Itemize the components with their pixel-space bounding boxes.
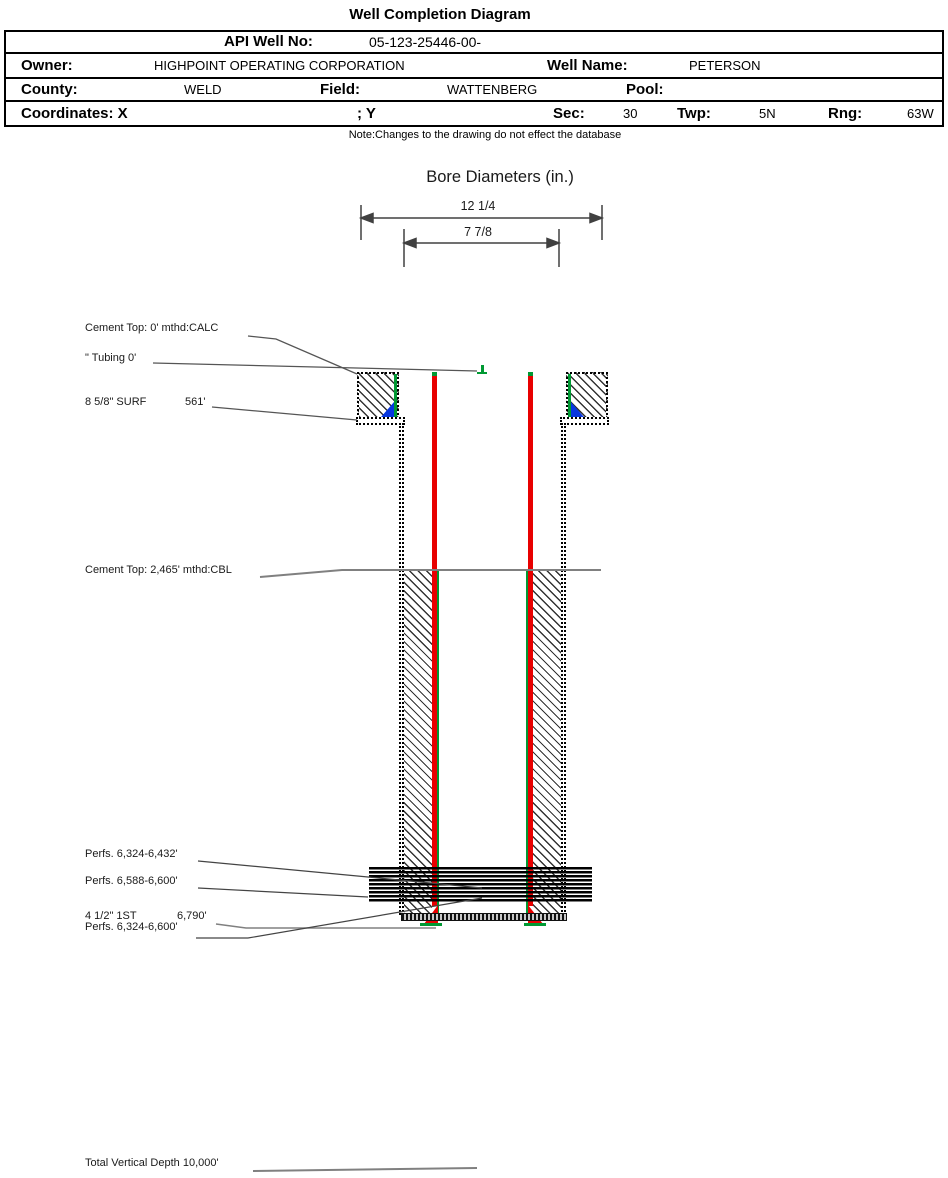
label-surface-casing: 8 5/8" SURF 561'	[85, 396, 146, 408]
sec-label: Sec:	[553, 102, 585, 125]
tubing-tick-base	[477, 372, 487, 374]
label-cement-top-surface: Cement Top: 0' mthd:CALC	[85, 322, 218, 334]
surface-casing-line-right	[568, 374, 571, 417]
label-cement-top-production: Cement Top: 2,465' mthd:CBL	[85, 564, 232, 576]
bore-diameters-title: Bore Diameters (in.)	[0, 168, 948, 187]
casing-inner-green-right	[526, 570, 528, 914]
outer-bore-dimension-label: 12 1/4	[428, 199, 528, 213]
label-tubing: " Tubing 0'	[85, 352, 136, 364]
inner-bore-dimension-label: 7 7/8	[428, 225, 528, 239]
surface-shoe-bar-right	[560, 417, 609, 425]
coordinates-y-label: ; Y	[357, 102, 376, 125]
label-surface-casing-depth: 561'	[185, 396, 205, 408]
twp-label: Twp:	[677, 102, 711, 125]
label-perfs-overall: Perfs. 6,324-6,600'	[85, 921, 178, 933]
well-info-table: API Well No: 05-123-25446-00- Owner: HIG…	[4, 30, 944, 127]
leader-perfs-middle	[198, 888, 368, 897]
pool-label: Pool:	[626, 79, 664, 100]
well-name-label: Well Name:	[547, 54, 628, 77]
production-cement-left	[404, 570, 432, 914]
rng-label: Rng:	[828, 102, 862, 125]
casing-top-cap-right	[528, 372, 533, 376]
surface-shoe-bar-left	[356, 417, 405, 425]
sec-value: 30	[623, 102, 637, 125]
casing-top-cap-left	[432, 372, 437, 376]
leader-surface-casing	[212, 407, 357, 420]
production-casing-right	[528, 372, 533, 906]
owner-value: HIGHPOINT OPERATING CORPORATION	[154, 54, 405, 77]
label-perfs-middle: Perfs. 6,588-6,600'	[85, 875, 178, 887]
table-row-api: API Well No: 05-123-25446-00-	[6, 32, 942, 52]
county-label: County:	[21, 79, 78, 100]
shoe-base-left	[420, 923, 442, 926]
table-row-owner: Owner: HIGHPOINT OPERATING CORPORATION W…	[6, 52, 942, 77]
well-name-value: PETERSON	[689, 54, 761, 77]
borehole-wall-right	[561, 423, 566, 915]
page-title: Well Completion Diagram	[0, 6, 880, 23]
label-total-vertical-depth: Total Vertical Depth 10,000'	[85, 1157, 219, 1169]
county-value: WELD	[184, 79, 222, 100]
twp-value: 5N	[759, 102, 776, 125]
casing-inner-green-left	[437, 570, 439, 914]
label-production-casing-depth: 6,790'	[177, 910, 207, 922]
coordinates-label: Coordinates: X	[21, 102, 128, 125]
well-completion-diagram-page: Well Completion Diagram API Well No: 05-…	[0, 0, 948, 1178]
field-label: Field:	[320, 79, 360, 100]
api-label: API Well No:	[224, 32, 313, 52]
owner-label: Owner:	[21, 54, 73, 77]
shoe-base-right	[524, 923, 546, 926]
leader-production-casing	[216, 924, 436, 928]
database-note: Note:Changes to the drawing do not effec…	[0, 129, 948, 141]
leader-cement-top-surface	[248, 336, 357, 374]
well-bottom-bar	[401, 913, 567, 921]
table-row-coordinates: Coordinates: X ; Y Sec: 30 Twp: 5N Rng: …	[6, 100, 942, 125]
table-row-county: County: WELD Field: WATTENBERG Pool:	[6, 77, 942, 100]
surface-casing-line-left	[394, 374, 397, 417]
leader-tubing	[153, 363, 477, 371]
label-perfs-upper: Perfs. 6,324-6,432'	[85, 848, 178, 860]
perforation-band	[369, 867, 592, 902]
leader-total-vertical-depth	[253, 1168, 477, 1171]
field-value: WATTENBERG	[447, 79, 537, 100]
api-value: 05-123-25446-00-	[369, 32, 481, 52]
rng-value: 63W	[907, 102, 934, 125]
production-cement-right	[533, 570, 561, 914]
